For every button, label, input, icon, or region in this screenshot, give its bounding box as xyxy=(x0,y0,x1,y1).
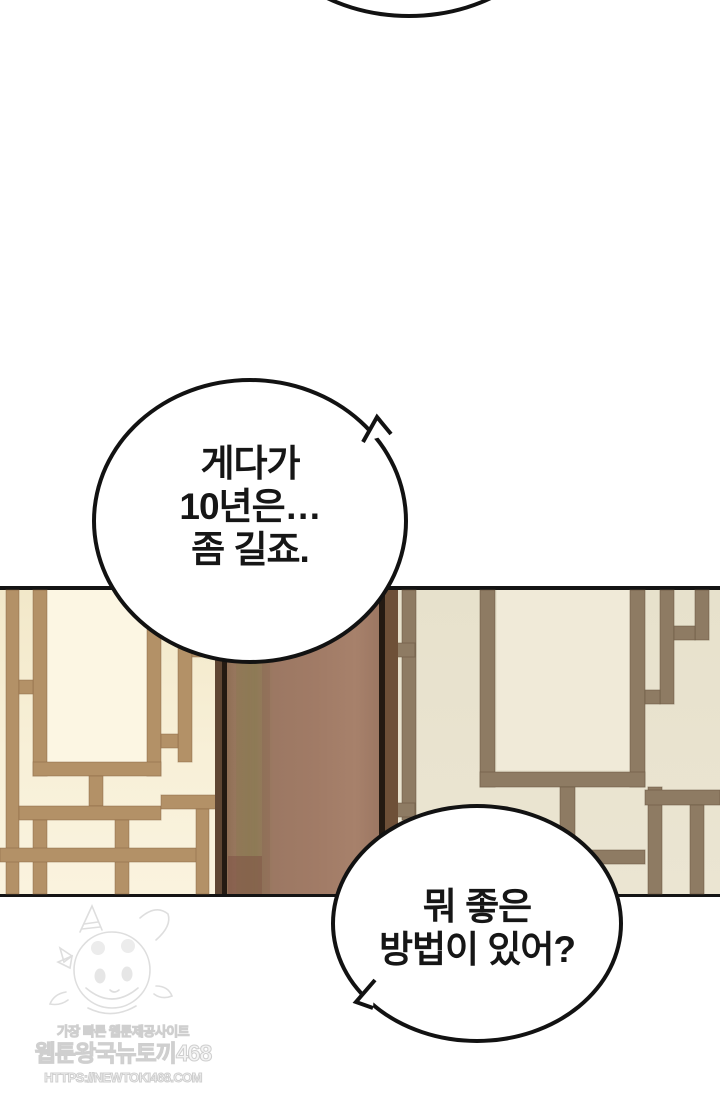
webtoon-page: 게다가 10년은… 좀 길죠. 뭐 좋은 방법이 있어? xyxy=(0,0,720,1098)
watermark-url: HTTPS://NEWTOKI468.COM xyxy=(28,1071,218,1085)
speech-line: 방법이 있어? xyxy=(331,929,623,972)
speech-line: 좀 길죠. xyxy=(92,529,408,572)
watermark-mascot-illustration xyxy=(28,900,218,1018)
speech-line: 10년은… xyxy=(92,486,408,529)
watermark-tagline: 가장 빠른 웹툰제공사이트 xyxy=(28,1025,218,1039)
speech-line: 뭐 좋은 xyxy=(331,886,623,929)
site-watermark: 가장 빠른 웹툰제공사이트 웹툰왕국뉴토끼468 HTTPS://NEWTOKI… xyxy=(28,900,218,1085)
speech-bubble-middle-text: 게다가 10년은… 좀 길죠. xyxy=(92,443,408,572)
speech-bubble-bottom-text: 뭐 좋은 방법이 있어? xyxy=(331,886,623,972)
watermark-site-name: 웹툰왕국뉴토끼468 xyxy=(28,1041,218,1066)
speech-line: 게다가 xyxy=(92,443,408,486)
